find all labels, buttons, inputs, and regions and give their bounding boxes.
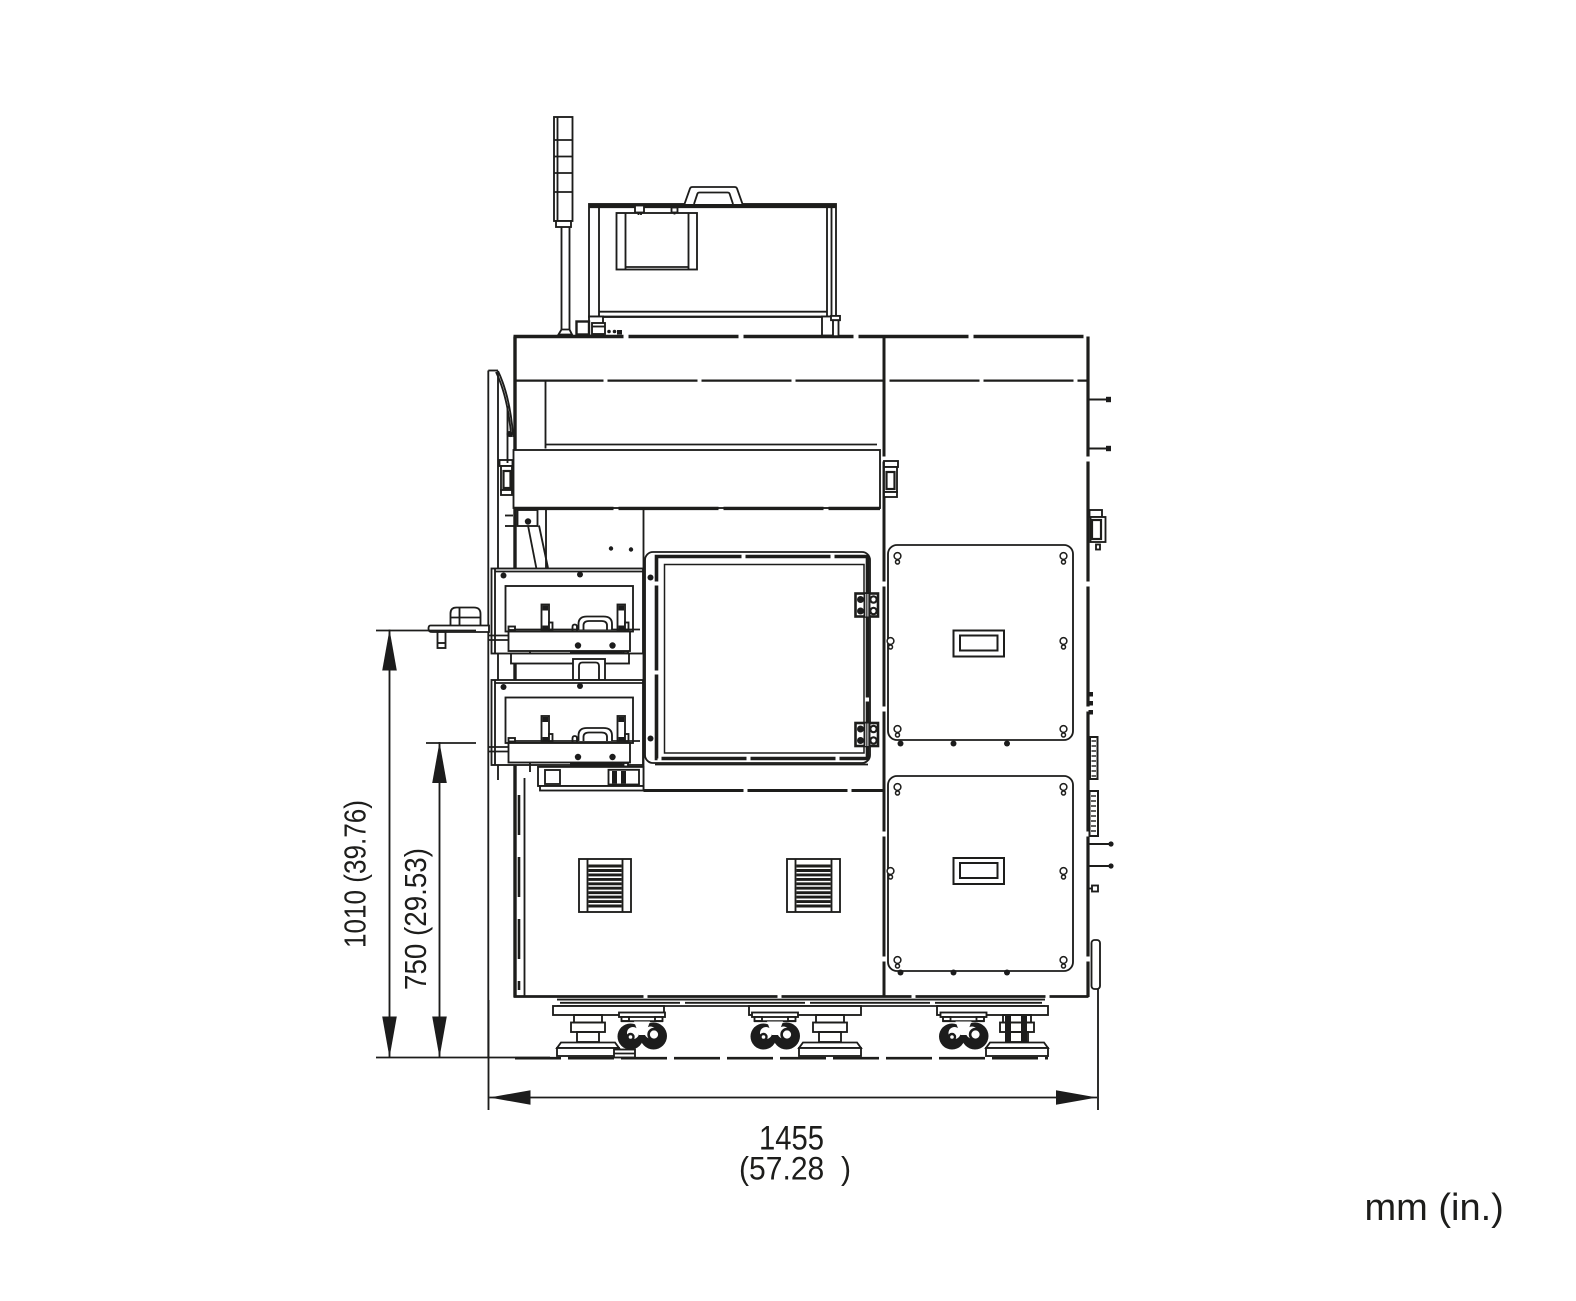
svg-text:750 (29.53): 750 (29.53)	[398, 848, 433, 990]
svg-text:mm (in.): mm (in.)	[1365, 1187, 1504, 1229]
svg-text:(57.28 ): (57.28 )	[739, 1151, 851, 1187]
svg-text:1010 (39.76): 1010 (39.76)	[338, 800, 373, 948]
